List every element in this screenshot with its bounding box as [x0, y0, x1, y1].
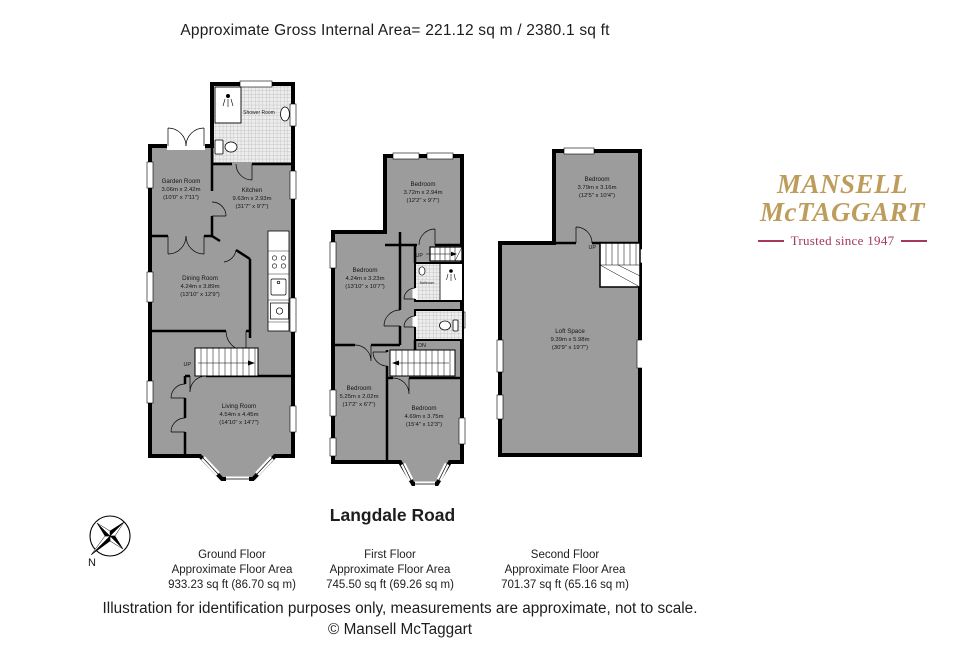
stairs-up-label: UP: [184, 362, 192, 368]
svg-text:(12'5" x 10'4"): (12'5" x 10'4"): [579, 193, 615, 199]
compass-star: [91, 522, 124, 555]
mini-staircase: [426, 247, 462, 261]
svg-text:9.63m x 2.93m: 9.63m x 2.93m: [233, 196, 272, 202]
tagline-text: Trusted since 1947: [791, 233, 895, 249]
floor-area-label: Approximate Floor Area: [290, 563, 490, 578]
floor-name: Second Floor: [465, 548, 665, 563]
page-title: Approximate Gross Internal Area= 221.12 …: [0, 22, 790, 40]
svg-text:Loft Space: Loft Space: [555, 328, 585, 335]
stairs-down-label: DN: [418, 343, 426, 349]
kitchen-counter: [268, 231, 289, 331]
svg-text:Bedroom: Bedroom: [346, 385, 371, 392]
floor-name: First Floor: [290, 548, 490, 563]
floor-area-value: 701.37 sq ft (65.16 sq m): [465, 578, 665, 593]
ground-floor-plan: UP Shower Room Garden Room 3.06m x 2.42m…: [140, 76, 300, 491]
svg-text:Kitchen: Kitchen: [242, 187, 263, 194]
svg-text:(30'9" x 19'7"): (30'9" x 19'7"): [552, 345, 588, 351]
tagline-rule-right: [901, 240, 927, 242]
svg-text:Living Room: Living Room: [222, 403, 256, 410]
second-floor-plan: UP Bedroom 3.79m x 3.16m (12'5" x 10'4")…: [492, 145, 642, 460]
room-label: Bathroom: [420, 281, 435, 285]
svg-text:Bedroom: Bedroom: [411, 405, 436, 412]
svg-text:4.69m x 3.75m: 4.69m x 3.75m: [405, 414, 444, 420]
sink-icon: [419, 267, 425, 275]
stairs-up-label: UP: [416, 253, 424, 259]
floor-area-label: Approximate Floor Area: [465, 563, 665, 578]
svg-text:5.25m x 2.02m: 5.25m x 2.02m: [340, 394, 379, 400]
svg-text:Bedroom: Bedroom: [584, 176, 609, 183]
logo-name-line1: MANSELL: [750, 170, 935, 198]
logo-name-line2: McTAGGART: [750, 198, 935, 226]
svg-text:3.79m x 3.16m: 3.79m x 3.16m: [578, 185, 617, 191]
staircase: [600, 243, 640, 287]
svg-text:(12'2" x 9'7"): (12'2" x 9'7"): [407, 198, 440, 204]
floor-caption-second: Second Floor Approximate Floor Area 701.…: [465, 548, 665, 594]
staircase: [390, 350, 455, 376]
svg-text:Dining Room: Dining Room: [182, 275, 218, 282]
exterior-walls: [500, 151, 640, 455]
agency-logo: MANSELL McTAGGART Trusted since 1947: [750, 170, 935, 249]
tagline-rule-left: [758, 240, 784, 242]
svg-text:(10'0" x 7'11"): (10'0" x 7'11"): [163, 195, 199, 201]
svg-text:(31'7" x 9'7"): (31'7" x 9'7"): [236, 204, 269, 210]
floor-area-value: 745.50 sq ft (69.26 sq m): [290, 578, 490, 593]
compass-north-label: N: [88, 557, 96, 569]
svg-text:4.24m x 3.23m: 4.24m x 3.23m: [346, 276, 385, 282]
staircase: [195, 348, 258, 376]
room-label: Shower Room: [243, 110, 275, 116]
stairs-up-label: UP: [589, 245, 597, 251]
svg-text:Garden Room: Garden Room: [162, 178, 201, 185]
floorplan-page: Approximate Gross Internal Area= 221.12 …: [0, 0, 980, 653]
sink-icon: [281, 107, 290, 121]
svg-text:3.72m x 2.94m: 3.72m x 2.94m: [404, 190, 443, 196]
svg-text:Bedroom: Bedroom: [352, 267, 377, 274]
disclaimer-text: Illustration for identification purposes…: [0, 600, 800, 618]
floor-caption-first: First Floor Approximate Floor Area 745.5…: [290, 548, 490, 594]
shower-icon: [449, 269, 453, 273]
svg-text:(17'2" x 6'7"): (17'2" x 6'7"): [343, 402, 376, 408]
first-floor-plan: UP Bathroom DN: [325, 150, 470, 490]
shower-icon: [215, 87, 241, 123]
svg-text:(13'10" x 10'7"): (13'10" x 10'7"): [345, 284, 385, 290]
svg-text:4.54m x 4.45m: 4.54m x 4.45m: [220, 412, 259, 418]
svg-text:(15'4" x 12'3"): (15'4" x 12'3"): [406, 422, 442, 428]
svg-text:4.24m x 3.89m: 4.24m x 3.89m: [181, 284, 220, 290]
svg-text:(14'10" x 14'7"): (14'10" x 14'7"): [219, 420, 259, 426]
logo-tagline: Trusted since 1947: [750, 233, 935, 249]
svg-text:3.06m x 2.42m: 3.06m x 2.42m: [162, 187, 201, 193]
compass-rose: N: [80, 510, 140, 570]
svg-text:9.39m x 5.98m: 9.39m x 5.98m: [551, 337, 590, 343]
copyright-text: © Mansell McTaggart: [0, 621, 800, 639]
svg-text:Bedroom: Bedroom: [410, 181, 435, 188]
svg-text:(13'10" x 12'9"): (13'10" x 12'9"): [180, 292, 220, 298]
